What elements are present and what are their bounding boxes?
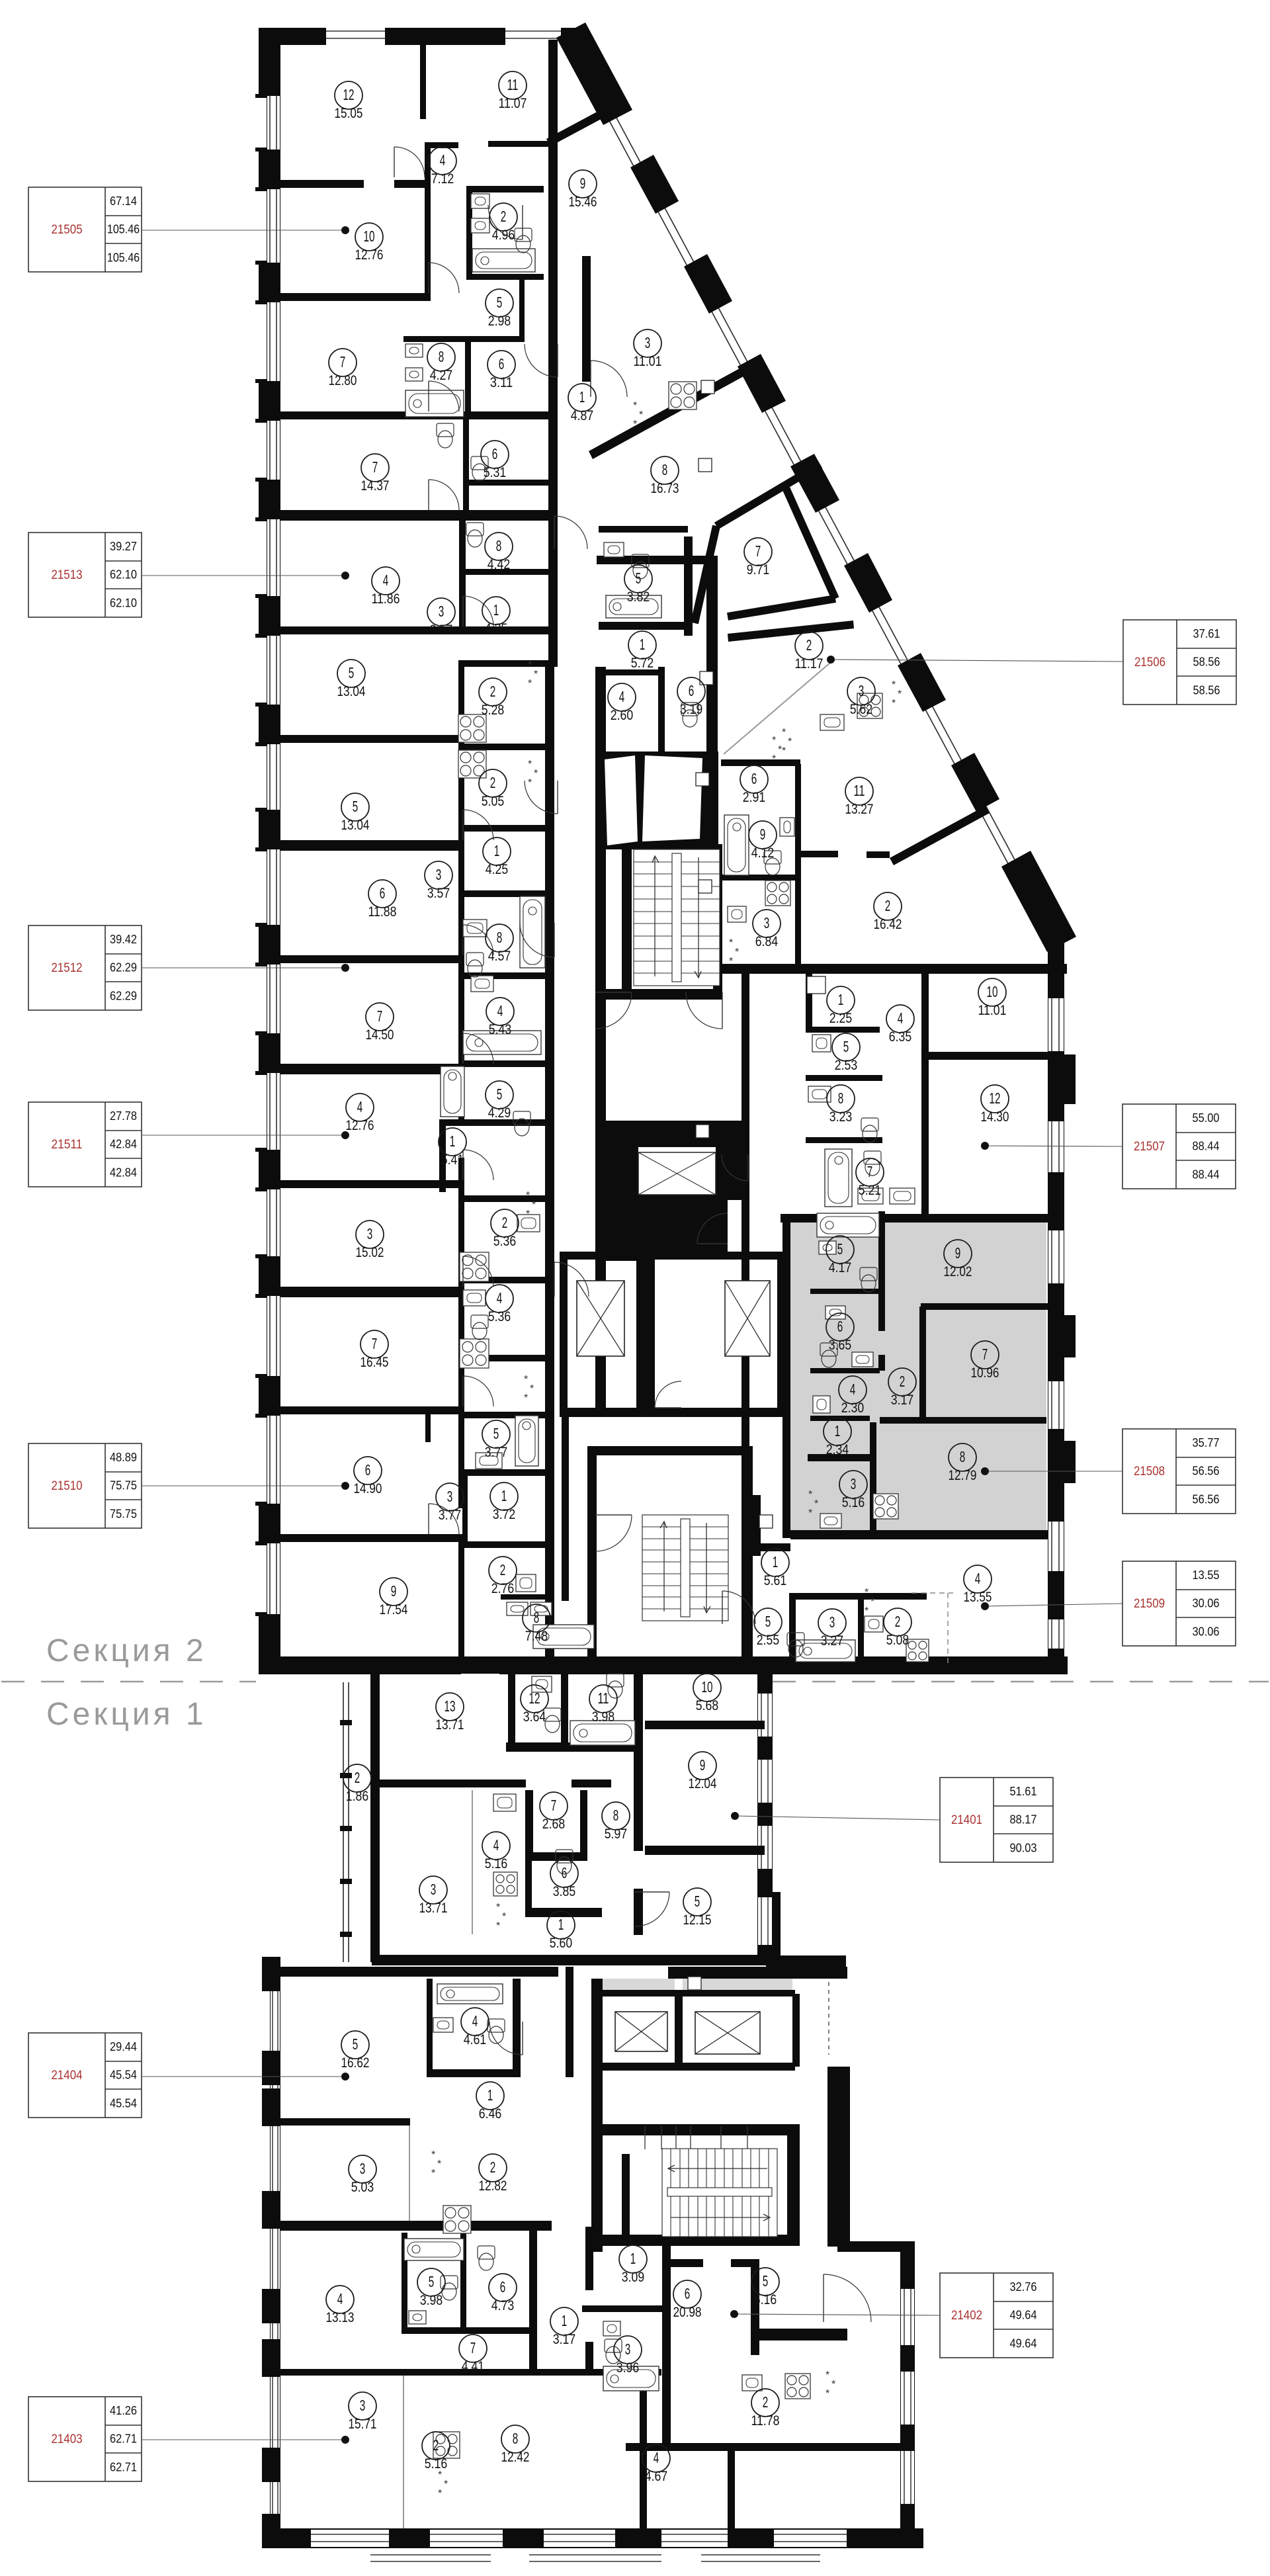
svg-text:4: 4 (850, 1381, 856, 1398)
svg-text:*: * (808, 1508, 812, 1519)
svg-text:7: 7 (340, 353, 346, 370)
svg-text:*: * (831, 2379, 835, 2390)
svg-text:51.61: 51.61 (1010, 1785, 1037, 1798)
svg-text:5.61: 5.61 (764, 1573, 786, 1588)
svg-text:4.42: 4.42 (487, 557, 510, 572)
svg-text:21512: 21512 (52, 961, 83, 975)
svg-text:88.17: 88.17 (1010, 1813, 1037, 1826)
svg-text:7: 7 (377, 1008, 383, 1025)
svg-text:41.26: 41.26 (110, 2404, 137, 2417)
svg-text:4.57: 4.57 (488, 949, 511, 964)
svg-text:2: 2 (501, 208, 507, 225)
svg-text:2.25: 2.25 (829, 1011, 852, 1026)
svg-text:2.53: 2.53 (835, 1058, 857, 1073)
svg-text:5.16: 5.16 (842, 1495, 865, 1510)
svg-text:7: 7 (867, 1163, 873, 1180)
svg-text:9.71: 9.71 (747, 562, 769, 578)
svg-text:6: 6 (751, 770, 757, 787)
svg-text:4: 4 (440, 151, 446, 169)
svg-text:3: 3 (439, 603, 444, 620)
svg-text:*: * (633, 419, 637, 430)
svg-text:6: 6 (492, 445, 498, 462)
svg-text:2: 2 (763, 2393, 769, 2411)
svg-text:6: 6 (837, 1318, 843, 1335)
svg-text:42.84: 42.84 (110, 1138, 137, 1151)
svg-text:13: 13 (444, 1697, 456, 1715)
svg-text:3.82: 3.82 (627, 589, 650, 605)
svg-text:55.00: 55.00 (1193, 1111, 1220, 1125)
svg-text:14.37: 14.37 (361, 478, 390, 494)
svg-text:5.41: 5.41 (441, 1152, 464, 1168)
svg-text:13.55: 13.55 (1193, 1568, 1220, 1582)
svg-text:21402: 21402 (951, 2309, 982, 2323)
svg-text:1: 1 (562, 2312, 568, 2329)
svg-text:2.91: 2.91 (743, 790, 765, 805)
svg-text:*: * (534, 768, 538, 779)
svg-text:2.98: 2.98 (488, 314, 511, 329)
svg-text:3: 3 (625, 2340, 631, 2358)
svg-text:2: 2 (490, 683, 496, 700)
svg-text:16.73: 16.73 (651, 481, 679, 496)
svg-text:29.44: 29.44 (110, 2040, 137, 2053)
svg-text:75.75: 75.75 (110, 1479, 137, 1492)
svg-text:8: 8 (534, 1609, 540, 1626)
svg-text:13.55: 13.55 (964, 1590, 992, 1605)
svg-text:2: 2 (490, 2159, 496, 2176)
svg-text:1: 1 (487, 2086, 493, 2104)
svg-text:2: 2 (433, 2436, 439, 2454)
svg-text:3: 3 (764, 914, 770, 931)
svg-text:49.64: 49.64 (1010, 2337, 1037, 2350)
svg-text:8: 8 (662, 461, 668, 478)
svg-text:48.89: 48.89 (110, 1451, 137, 1464)
svg-text:1: 1 (579, 388, 585, 406)
svg-text:3: 3 (367, 1225, 373, 1242)
svg-text:2.76: 2.76 (491, 1581, 514, 1596)
svg-text:5: 5 (843, 1038, 849, 1055)
svg-text:12.04: 12.04 (689, 1776, 717, 1791)
svg-text:9: 9 (760, 826, 766, 843)
svg-text:58.56: 58.56 (1193, 656, 1220, 669)
svg-text:32.76: 32.76 (1010, 2280, 1037, 2294)
svg-text:21403: 21403 (52, 2432, 83, 2446)
svg-text:3.64: 3.64 (523, 1709, 546, 1725)
svg-text:21404: 21404 (52, 2069, 83, 2082)
svg-text:12.80: 12.80 (329, 373, 357, 388)
svg-text:30.06: 30.06 (1193, 1625, 1220, 1638)
svg-text:*: * (892, 679, 896, 691)
svg-text:27.78: 27.78 (110, 1109, 137, 1123)
svg-text:10: 10 (987, 983, 998, 1000)
svg-text:*: * (825, 2388, 829, 2399)
svg-text:*: * (502, 1911, 506, 1922)
svg-text:2: 2 (806, 636, 812, 654)
svg-text:21505: 21505 (52, 223, 83, 237)
svg-text:*: * (437, 2159, 441, 2170)
svg-text:2: 2 (895, 1613, 901, 1630)
svg-text:4: 4 (383, 572, 389, 589)
svg-text:2.68: 2.68 (542, 1817, 565, 1832)
svg-text:10: 10 (364, 228, 375, 245)
svg-text:5.21: 5.21 (859, 1183, 881, 1198)
svg-text:45.54: 45.54 (110, 2096, 137, 2110)
svg-text:2.60: 2.60 (611, 708, 633, 723)
svg-text:9: 9 (700, 1756, 706, 1774)
svg-text:11: 11 (598, 1690, 609, 1707)
svg-text:13.71: 13.71 (419, 1901, 448, 1916)
svg-text:6: 6 (380, 884, 386, 902)
svg-text:*: * (892, 698, 896, 709)
svg-text:15.46: 15.46 (569, 194, 597, 210)
svg-text:11.01: 11.01 (634, 354, 662, 369)
svg-text:*: * (808, 1489, 812, 1500)
svg-text:2.30: 2.30 (841, 1400, 864, 1416)
svg-text:*: * (729, 956, 733, 967)
svg-text:15.02: 15.02 (356, 1245, 384, 1260)
svg-text:3.65: 3.65 (829, 1338, 851, 1353)
svg-text:12: 12 (990, 1090, 1001, 1107)
svg-text:8: 8 (497, 929, 503, 946)
svg-text:4: 4 (337, 2290, 343, 2307)
svg-text:8: 8 (439, 348, 444, 365)
svg-text:15.05: 15.05 (335, 106, 363, 121)
svg-text:11.01: 11.01 (978, 1003, 1007, 1018)
svg-text:4: 4 (975, 1570, 981, 1587)
svg-text:7: 7 (755, 542, 761, 560)
svg-text:*: * (526, 1209, 530, 1220)
svg-text:*: * (782, 746, 786, 757)
svg-text:13.13: 13.13 (326, 2310, 355, 2325)
svg-text:4.12: 4.12 (751, 845, 774, 861)
svg-text:9: 9 (580, 175, 586, 192)
svg-text:4.87: 4.87 (571, 408, 593, 423)
svg-text:12: 12 (343, 86, 355, 103)
svg-text:1: 1 (501, 1487, 507, 1504)
svg-text:1: 1 (640, 636, 646, 653)
svg-text:3.17: 3.17 (891, 1393, 913, 1408)
svg-text:2: 2 (885, 897, 891, 914)
svg-text:12.02: 12.02 (944, 1264, 972, 1279)
svg-text:4.96: 4.96 (492, 228, 515, 243)
svg-text:5: 5 (497, 294, 503, 311)
svg-text:6: 6 (562, 1864, 568, 1881)
svg-text:4: 4 (619, 688, 625, 705)
svg-text:11.86: 11.86 (372, 591, 400, 607)
svg-text:10.96: 10.96 (971, 1365, 999, 1381)
svg-text:6: 6 (685, 2285, 691, 2302)
svg-text:2: 2 (490, 774, 496, 791)
svg-text:3.09: 3.09 (622, 2270, 644, 2285)
svg-text:2.34: 2.34 (826, 1442, 849, 1457)
svg-text:9: 9 (391, 1582, 397, 1600)
svg-text:11.78: 11.78 (751, 2413, 780, 2428)
svg-text:39.42: 39.42 (110, 933, 137, 946)
svg-text:42.84: 42.84 (110, 1166, 137, 1179)
svg-text:21513: 21513 (52, 568, 83, 582)
svg-text:5.03: 5.03 (351, 2180, 374, 2195)
svg-text:21510: 21510 (52, 1479, 83, 1493)
svg-text:*: * (526, 1190, 530, 1201)
svg-text:5: 5 (765, 1613, 771, 1630)
svg-text:6.35: 6.35 (889, 1029, 911, 1045)
svg-text:3.23: 3.23 (829, 1109, 852, 1125)
svg-text:3: 3 (431, 1881, 437, 1898)
svg-text:4.73: 4.73 (491, 2298, 514, 2313)
svg-text:7: 7 (372, 1335, 378, 1352)
svg-text:88.44: 88.44 (1193, 1168, 1220, 1181)
svg-text:5.28: 5.28 (482, 703, 504, 718)
svg-text:3.19: 3.19 (680, 702, 702, 717)
svg-text:12.42: 12.42 (501, 2450, 530, 2465)
svg-text:62.29: 62.29 (110, 989, 137, 1002)
svg-text:8: 8 (496, 537, 502, 554)
svg-text:*: * (496, 1920, 500, 1932)
svg-text:7: 7 (982, 1346, 988, 1363)
svg-text:12.76: 12.76 (346, 1118, 374, 1133)
svg-text:12: 12 (529, 1690, 540, 1707)
svg-text:4: 4 (654, 2449, 659, 2466)
svg-text:*: * (524, 1393, 528, 1404)
svg-text:5.43: 5.43 (489, 1022, 511, 1037)
svg-text:90.03: 90.03 (1010, 1841, 1037, 1854)
svg-text:3: 3 (851, 1475, 857, 1492)
svg-text:*: * (431, 2149, 435, 2161)
svg-text:3.17: 3.17 (553, 2332, 575, 2347)
svg-text:*: * (782, 727, 786, 738)
svg-text:4.61: 4.61 (464, 2032, 486, 2047)
svg-text:2.55: 2.55 (757, 1633, 779, 1648)
svg-text:*: * (496, 1902, 500, 1913)
svg-text:2: 2 (502, 1214, 508, 1231)
svg-text:5.97: 5.97 (605, 1826, 627, 1842)
svg-text:58.56: 58.56 (1193, 683, 1220, 697)
svg-text:14.50: 14.50 (366, 1027, 394, 1043)
svg-text:6.46: 6.46 (479, 2106, 501, 2122)
svg-text:2: 2 (900, 1373, 906, 1390)
svg-text:8: 8 (960, 1448, 966, 1465)
svg-text:*: * (865, 1606, 868, 1617)
svg-text:*: * (735, 947, 739, 958)
svg-text:6.84: 6.84 (755, 934, 779, 949)
svg-text:1: 1 (450, 1133, 456, 1150)
svg-text:5: 5 (353, 2036, 359, 2053)
svg-text:4: 4 (898, 1009, 904, 1027)
svg-text:5: 5 (429, 2273, 435, 2290)
svg-text:12.15: 12.15 (683, 1912, 712, 1928)
svg-text:*: * (729, 937, 733, 949)
svg-text:*: * (431, 2168, 435, 2179)
svg-text:12.79: 12.79 (949, 1468, 977, 1483)
svg-text:*: * (772, 753, 776, 765)
svg-text:3.77: 3.77 (439, 1508, 461, 1523)
svg-text:7: 7 (551, 1797, 557, 1814)
svg-text:*: * (788, 736, 792, 748)
svg-text:105.46: 105.46 (107, 251, 140, 264)
svg-text:*: * (639, 409, 643, 421)
svg-text:5.36: 5.36 (493, 1234, 516, 1249)
svg-text:4: 4 (497, 1002, 503, 1019)
svg-text:*: * (814, 1498, 818, 1510)
svg-text:2: 2 (355, 1769, 360, 1786)
svg-text:Секция 2: Секция 2 (46, 1633, 207, 1668)
svg-text:5.08: 5.08 (886, 1633, 909, 1648)
svg-text:4.27: 4.27 (430, 368, 452, 383)
svg-text:14.30: 14.30 (981, 1109, 1009, 1125)
svg-text:5: 5 (695, 1893, 700, 1910)
svg-text:6: 6 (499, 355, 505, 372)
svg-text:67.14: 67.14 (110, 194, 137, 208)
svg-text:*: * (528, 660, 532, 671)
svg-text:*: * (898, 689, 902, 700)
svg-text:16.42: 16.42 (874, 917, 902, 932)
svg-text:5.16: 5.16 (425, 2456, 447, 2471)
svg-text:3: 3 (645, 334, 651, 351)
svg-text:*: * (532, 1199, 536, 1211)
svg-text:13.71: 13.71 (436, 1717, 464, 1733)
svg-text:5.62: 5.62 (850, 702, 872, 717)
svg-text:4.67: 4.67 (645, 2469, 667, 2484)
svg-text:11: 11 (854, 782, 865, 799)
svg-text:4: 4 (497, 1289, 503, 1307)
svg-text:5.16: 5.16 (485, 1856, 507, 1871)
svg-text:16.62: 16.62 (341, 2055, 370, 2071)
svg-text:10: 10 (702, 1678, 713, 1696)
svg-text:7: 7 (372, 458, 378, 476)
svg-text:21509: 21509 (1134, 1597, 1165, 1611)
svg-text:*: * (530, 1383, 534, 1395)
svg-text:5.05: 5.05 (482, 794, 504, 809)
svg-text:5.68: 5.68 (696, 1698, 718, 1713)
svg-text:1: 1 (838, 991, 844, 1008)
svg-text:6: 6 (500, 2278, 506, 2296)
svg-text:21507: 21507 (1134, 1140, 1165, 1154)
svg-text:13.04: 13.04 (337, 684, 366, 699)
svg-text:*: * (528, 777, 532, 789)
svg-text:13.04: 13.04 (341, 818, 370, 833)
svg-text:62.29: 62.29 (110, 961, 137, 974)
svg-text:88.44: 88.44 (1193, 1140, 1220, 1153)
svg-text:5: 5 (493, 1425, 499, 1442)
svg-text:*: * (444, 2479, 448, 2490)
svg-text:*: * (528, 759, 532, 770)
svg-text:7.48: 7.48 (525, 1629, 548, 1644)
svg-text:3: 3 (859, 682, 865, 699)
svg-text:*: * (825, 2370, 829, 2381)
svg-text:5: 5 (497, 1086, 503, 1103)
svg-text:5.31: 5.31 (484, 465, 506, 480)
svg-text:62.71: 62.71 (110, 2460, 137, 2473)
svg-text:3.77: 3.77 (485, 1445, 507, 1460)
svg-text:5.16: 5.16 (754, 2292, 777, 2307)
svg-text:7: 7 (470, 2339, 476, 2356)
svg-text:30.06: 30.06 (1193, 1597, 1220, 1610)
svg-text:1: 1 (494, 842, 500, 859)
svg-text:*: * (633, 400, 637, 411)
svg-text:21401: 21401 (951, 1813, 982, 1827)
svg-text:6: 6 (365, 1461, 371, 1479)
svg-text:3.98: 3.98 (592, 1709, 614, 1725)
svg-text:17.54: 17.54 (380, 1602, 408, 1617)
svg-text:5: 5 (763, 2272, 769, 2290)
svg-text:56.56: 56.56 (1193, 1492, 1220, 1506)
svg-text:4.29: 4.29 (488, 1105, 511, 1121)
svg-text:45.54: 45.54 (110, 2069, 137, 2082)
svg-text:*: * (865, 1587, 868, 1598)
svg-text:3: 3 (447, 1488, 453, 1505)
svg-text:5: 5 (636, 570, 642, 587)
svg-text:15.71: 15.71 (349, 2417, 377, 2432)
svg-text:1: 1 (493, 601, 499, 619)
svg-text:14.90: 14.90 (354, 1481, 382, 1496)
svg-text:3: 3 (360, 2397, 366, 2414)
svg-text:3: 3 (436, 866, 442, 883)
svg-text:3.85: 3.85 (553, 1884, 575, 1899)
svg-text:49.64: 49.64 (1010, 2309, 1037, 2322)
svg-text:5: 5 (837, 1240, 843, 1258)
svg-text:Секция 1: Секция 1 (46, 1697, 207, 1732)
svg-text:3.11: 3.11 (490, 375, 513, 390)
svg-text:3.98: 3.98 (420, 2293, 443, 2308)
svg-text:12.76: 12.76 (355, 247, 384, 263)
svg-text:3: 3 (360, 2160, 366, 2177)
svg-text:8: 8 (613, 1807, 619, 1824)
svg-text:11.07: 11.07 (499, 96, 527, 111)
svg-text:3.57: 3.57 (430, 623, 452, 638)
svg-text:21508: 21508 (1134, 1465, 1165, 1479)
svg-text:21511: 21511 (52, 1138, 83, 1152)
svg-text:62.10: 62.10 (110, 568, 137, 581)
svg-text:56.56: 56.56 (1193, 1465, 1220, 1478)
svg-text:*: * (528, 678, 532, 689)
svg-text:3: 3 (829, 1613, 835, 1631)
svg-text:3.27: 3.27 (821, 1633, 843, 1649)
svg-text:4.25: 4.25 (486, 862, 508, 877)
svg-text:*: * (870, 1596, 874, 1608)
svg-text:5: 5 (353, 798, 359, 815)
svg-text:3.96: 3.96 (616, 2360, 639, 2376)
svg-text:11.88: 11.88 (368, 904, 397, 920)
svg-text:8: 8 (513, 2430, 519, 2447)
svg-text:4: 4 (357, 1098, 363, 1115)
svg-text:4.25: 4.25 (485, 621, 507, 636)
svg-text:35.77: 35.77 (1193, 1436, 1220, 1449)
svg-text:39.27: 39.27 (110, 540, 137, 553)
svg-text:16.45: 16.45 (360, 1355, 389, 1370)
svg-text:2: 2 (500, 1561, 506, 1578)
svg-text:5: 5 (349, 664, 355, 681)
svg-text:11: 11 (507, 76, 519, 93)
svg-text:1.86: 1.86 (346, 1789, 368, 1804)
svg-text:5.36: 5.36 (488, 1309, 511, 1324)
svg-text:9: 9 (955, 1244, 961, 1262)
svg-text:5.60: 5.60 (550, 1936, 572, 1951)
svg-text:7.12: 7.12 (431, 171, 454, 187)
svg-text:20.98: 20.98 (673, 2305, 702, 2320)
svg-text:62.10: 62.10 (110, 596, 137, 609)
svg-text:6: 6 (689, 682, 695, 699)
svg-text:*: * (772, 735, 776, 746)
svg-text:*: * (438, 2488, 442, 2499)
svg-text:5.72: 5.72 (631, 656, 654, 671)
svg-text:21506: 21506 (1134, 656, 1165, 669)
svg-text:4: 4 (472, 2012, 478, 2030)
svg-text:4: 4 (493, 1836, 499, 1854)
svg-text:8: 8 (838, 1090, 844, 1107)
svg-text:*: * (534, 669, 538, 680)
svg-text:4.17: 4.17 (829, 1260, 851, 1275)
svg-text:1: 1 (773, 1553, 779, 1570)
svg-text:105.46: 105.46 (107, 223, 140, 236)
